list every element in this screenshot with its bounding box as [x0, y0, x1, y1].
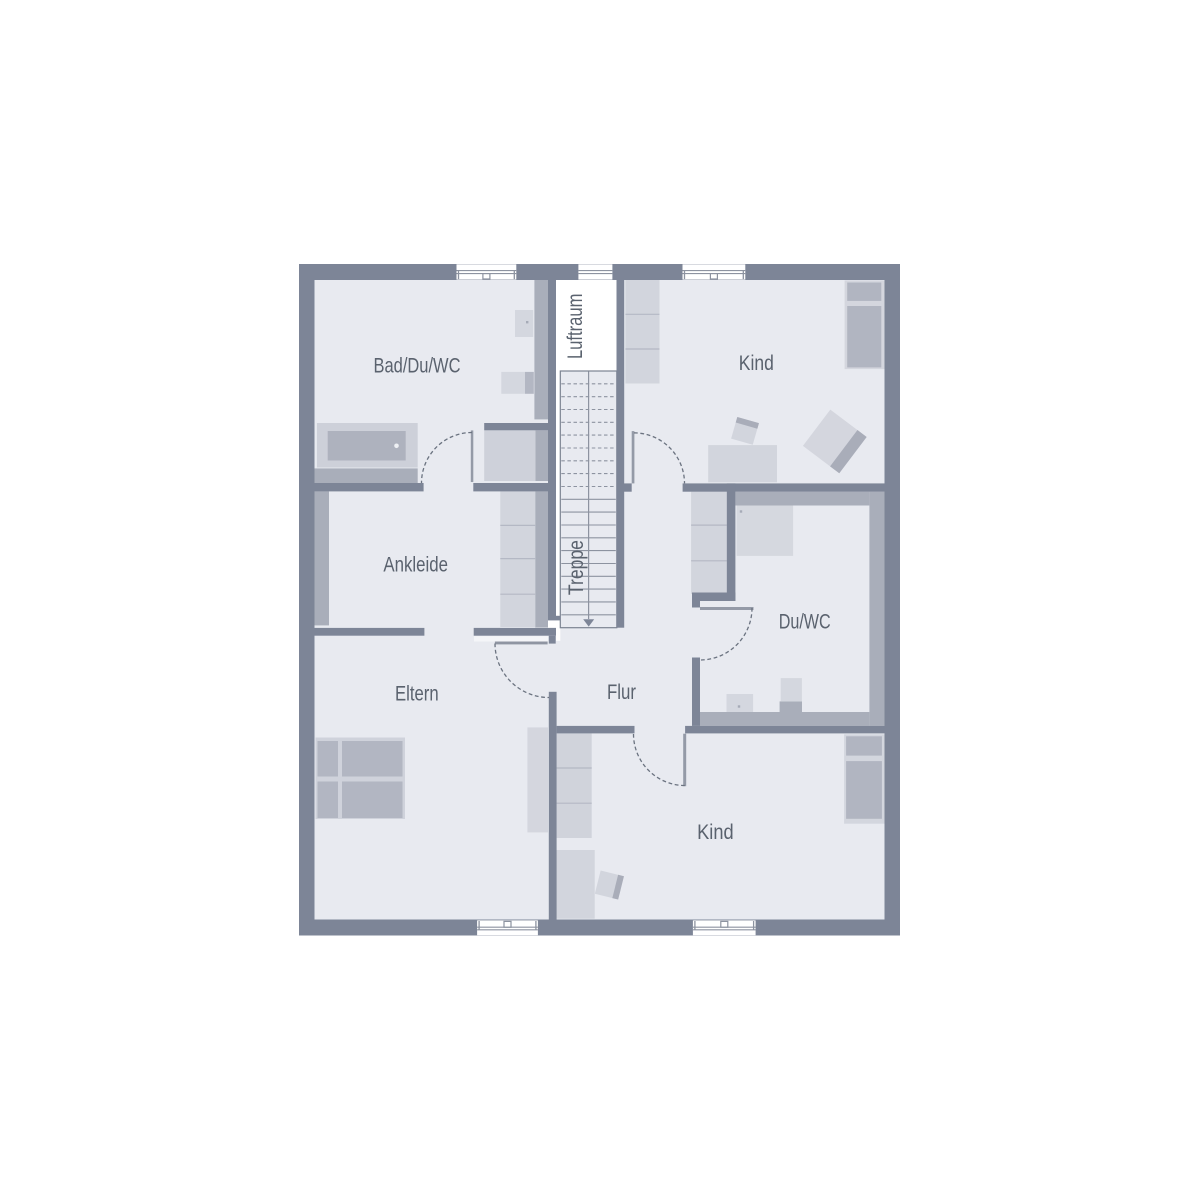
- svg-text:Luftraum: Luftraum: [564, 294, 587, 360]
- svg-text:Du/WC: Du/WC: [779, 611, 831, 634]
- svg-text:Eltern: Eltern: [395, 683, 439, 706]
- svg-text:Kind: Kind: [739, 352, 774, 375]
- svg-text:Treppe: Treppe: [565, 540, 588, 595]
- svg-text:Ankleide: Ankleide: [383, 554, 448, 577]
- svg-text:Bad/Du/WC: Bad/Du/WC: [374, 354, 461, 377]
- svg-text:Flur: Flur: [607, 681, 636, 704]
- svg-text:Kind: Kind: [697, 821, 734, 844]
